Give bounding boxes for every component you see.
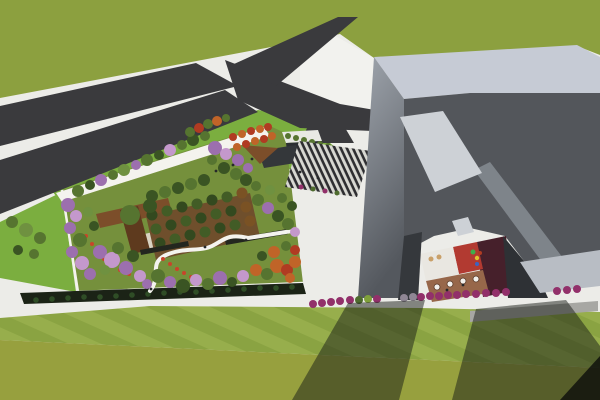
- garden-tree: [265, 185, 275, 195]
- lounger: [437, 255, 442, 260]
- orchard-tree: [192, 199, 203, 210]
- flower-drift: [175, 267, 179, 271]
- hedge-bush: [193, 289, 199, 295]
- garden-tree: [142, 279, 152, 289]
- planter-box: [323, 189, 328, 194]
- plaza-tree: [185, 127, 195, 137]
- orchard-tree: [245, 216, 256, 227]
- orchard-tree: [177, 202, 188, 213]
- orchard-tree: [207, 195, 218, 206]
- orchard-tree: [196, 213, 207, 224]
- person: [299, 171, 302, 174]
- shrub: [444, 291, 452, 299]
- garden-tree: [141, 154, 153, 166]
- plaza-tree: [293, 135, 299, 141]
- garden-tree: [61, 198, 75, 212]
- garden-tree: [243, 163, 253, 173]
- shrub: [492, 289, 500, 297]
- planter-box: [299, 185, 304, 190]
- aerial-rendering: [0, 0, 600, 400]
- playground-equipment: [475, 262, 479, 266]
- shrub: [553, 287, 561, 295]
- plaza-tree: [242, 140, 250, 148]
- shrub: [336, 297, 344, 305]
- garden-tree: [262, 202, 274, 214]
- plaza-tree: [233, 143, 241, 151]
- garden-tree: [198, 174, 210, 186]
- orchard-tree: [185, 230, 196, 241]
- planter-box: [335, 191, 340, 196]
- garden-tree: [251, 181, 261, 191]
- orchard-tree: [237, 188, 248, 199]
- garden-tree: [75, 256, 89, 270]
- lawn-tree: [34, 232, 46, 244]
- garden-tree: [100, 265, 110, 275]
- garden-tree: [272, 210, 284, 222]
- hedge-bush: [97, 294, 103, 300]
- garden-tree: [190, 274, 202, 286]
- cafe-table: [460, 278, 466, 284]
- garden-tree: [89, 221, 99, 231]
- shrub: [563, 286, 571, 294]
- shrub: [417, 293, 425, 301]
- garden-tree: [159, 186, 171, 198]
- playground-equipment: [471, 250, 476, 255]
- garden-tree: [240, 174, 252, 186]
- garden-tree: [290, 227, 300, 237]
- shrub: [573, 285, 581, 293]
- garden-tree: [108, 170, 118, 180]
- playground-equipment: [475, 256, 479, 260]
- hedge-bush: [161, 290, 167, 296]
- plaza-tree: [203, 119, 213, 129]
- lawn-tree: [6, 216, 18, 228]
- plaza-tree: [229, 133, 237, 141]
- garden-tree: [143, 199, 157, 213]
- orchard-tree: [166, 220, 177, 231]
- garden-tree: [112, 242, 124, 254]
- garden-tree: [257, 251, 267, 261]
- garden-tree: [154, 150, 164, 160]
- garden-tree: [83, 207, 93, 217]
- planter-box: [311, 187, 316, 192]
- garden-tree: [252, 194, 264, 206]
- garden-tree: [120, 205, 140, 225]
- cafe-table: [434, 284, 440, 290]
- person: [251, 158, 254, 161]
- garden-tree: [177, 140, 187, 150]
- plaza-tree: [212, 116, 222, 126]
- person: [232, 164, 235, 167]
- cafe-table: [473, 276, 479, 282]
- garden-tree: [118, 164, 130, 176]
- garden-tree: [164, 144, 176, 156]
- striped-entry-stairs: [285, 141, 371, 197]
- hedge-bush: [81, 294, 87, 300]
- garden-tree: [285, 273, 295, 283]
- shrub: [346, 296, 354, 304]
- flower-drift: [161, 257, 165, 261]
- garden-tree: [151, 269, 165, 283]
- garden-tree: [287, 201, 297, 211]
- plaza-tree: [256, 125, 264, 133]
- orchard-tree: [222, 192, 233, 203]
- garden-tree: [207, 155, 217, 165]
- garden-tree: [289, 256, 301, 268]
- person: [317, 177, 320, 180]
- garden-tree: [119, 261, 133, 275]
- person: [150, 288, 153, 291]
- garden-tree: [95, 174, 107, 186]
- garden-tree: [176, 279, 190, 293]
- person: [245, 239, 248, 242]
- orchard-tree: [181, 216, 192, 227]
- person: [446, 289, 449, 292]
- shrub: [462, 290, 470, 298]
- garden-tree: [281, 241, 291, 251]
- plaza-tree: [194, 123, 204, 133]
- plaza-tree: [222, 114, 230, 122]
- garden-tree: [237, 270, 249, 282]
- garden-tree: [213, 271, 227, 285]
- garden-tree: [66, 246, 78, 258]
- plaza-tree: [285, 133, 291, 139]
- shrub: [309, 300, 317, 308]
- orchard-tree: [151, 224, 162, 235]
- plaza-tree: [264, 123, 272, 131]
- hedge-bush: [113, 293, 119, 299]
- garden-tree: [85, 180, 95, 190]
- garden-tree: [64, 222, 76, 234]
- garden-tree: [268, 246, 280, 258]
- shrub: [482, 289, 490, 297]
- orchard-tree: [211, 209, 222, 220]
- garden-tree: [208, 141, 222, 155]
- shrub: [502, 288, 510, 296]
- playground-equipment: [478, 251, 482, 255]
- hedge-bush: [49, 296, 55, 302]
- person: [215, 170, 218, 173]
- shrub: [409, 293, 417, 301]
- garden-tree: [172, 182, 184, 194]
- plaza-tree: [238, 130, 246, 138]
- garden-tree: [131, 160, 141, 170]
- flower-drift: [182, 271, 186, 275]
- shrub: [318, 299, 326, 307]
- garden-tree: [200, 131, 210, 141]
- garden-tree: [230, 168, 242, 180]
- cafe-table: [447, 281, 453, 287]
- hedge-bush: [241, 286, 247, 292]
- flower-drift: [168, 262, 172, 266]
- garden-tree: [84, 268, 96, 280]
- shrub: [426, 292, 434, 300]
- garden-tree: [127, 250, 139, 262]
- garden-tree: [72, 185, 84, 197]
- plaza-tree: [268, 132, 276, 140]
- shrub: [453, 291, 461, 299]
- garden-tree: [220, 148, 232, 160]
- plaza-tree: [247, 127, 255, 135]
- hedge-bush: [289, 284, 295, 290]
- garden-tree: [277, 193, 287, 203]
- hedge-bush: [257, 285, 263, 291]
- lawn-tree: [29, 249, 39, 259]
- garden-tree: [73, 233, 87, 247]
- orchard-tree: [226, 206, 237, 217]
- shrub: [364, 295, 372, 303]
- garden-tree: [227, 277, 237, 287]
- hedge-bush: [225, 287, 231, 293]
- person: [204, 246, 207, 249]
- garden-tree: [218, 162, 230, 174]
- orchard-tree: [241, 202, 252, 213]
- flower-drift: [90, 242, 94, 246]
- lawn-tree: [13, 245, 23, 255]
- garden-tree: [290, 245, 300, 255]
- shrub: [472, 290, 480, 298]
- plaza-tree: [260, 135, 268, 143]
- orchard-tree: [162, 206, 173, 217]
- garden-tree: [202, 278, 214, 290]
- hedge-bush: [33, 297, 39, 303]
- plaza-tree: [251, 137, 259, 145]
- shrub: [435, 292, 443, 300]
- rendering-canvas: [0, 0, 600, 400]
- garden-tree: [70, 210, 82, 222]
- garden-tree: [250, 264, 262, 276]
- orchard-tree: [215, 223, 226, 234]
- shrub: [327, 298, 335, 306]
- lounger: [429, 257, 434, 262]
- hedge-bush: [65, 295, 71, 301]
- garden-tree: [185, 178, 197, 190]
- hedge-bush: [129, 292, 135, 298]
- garden-tree: [164, 276, 176, 288]
- lawn-tree: [19, 223, 33, 237]
- orchard-tree: [230, 220, 241, 231]
- person: [462, 284, 465, 287]
- orchard-tree: [200, 227, 211, 238]
- hedge-bush: [273, 285, 279, 291]
